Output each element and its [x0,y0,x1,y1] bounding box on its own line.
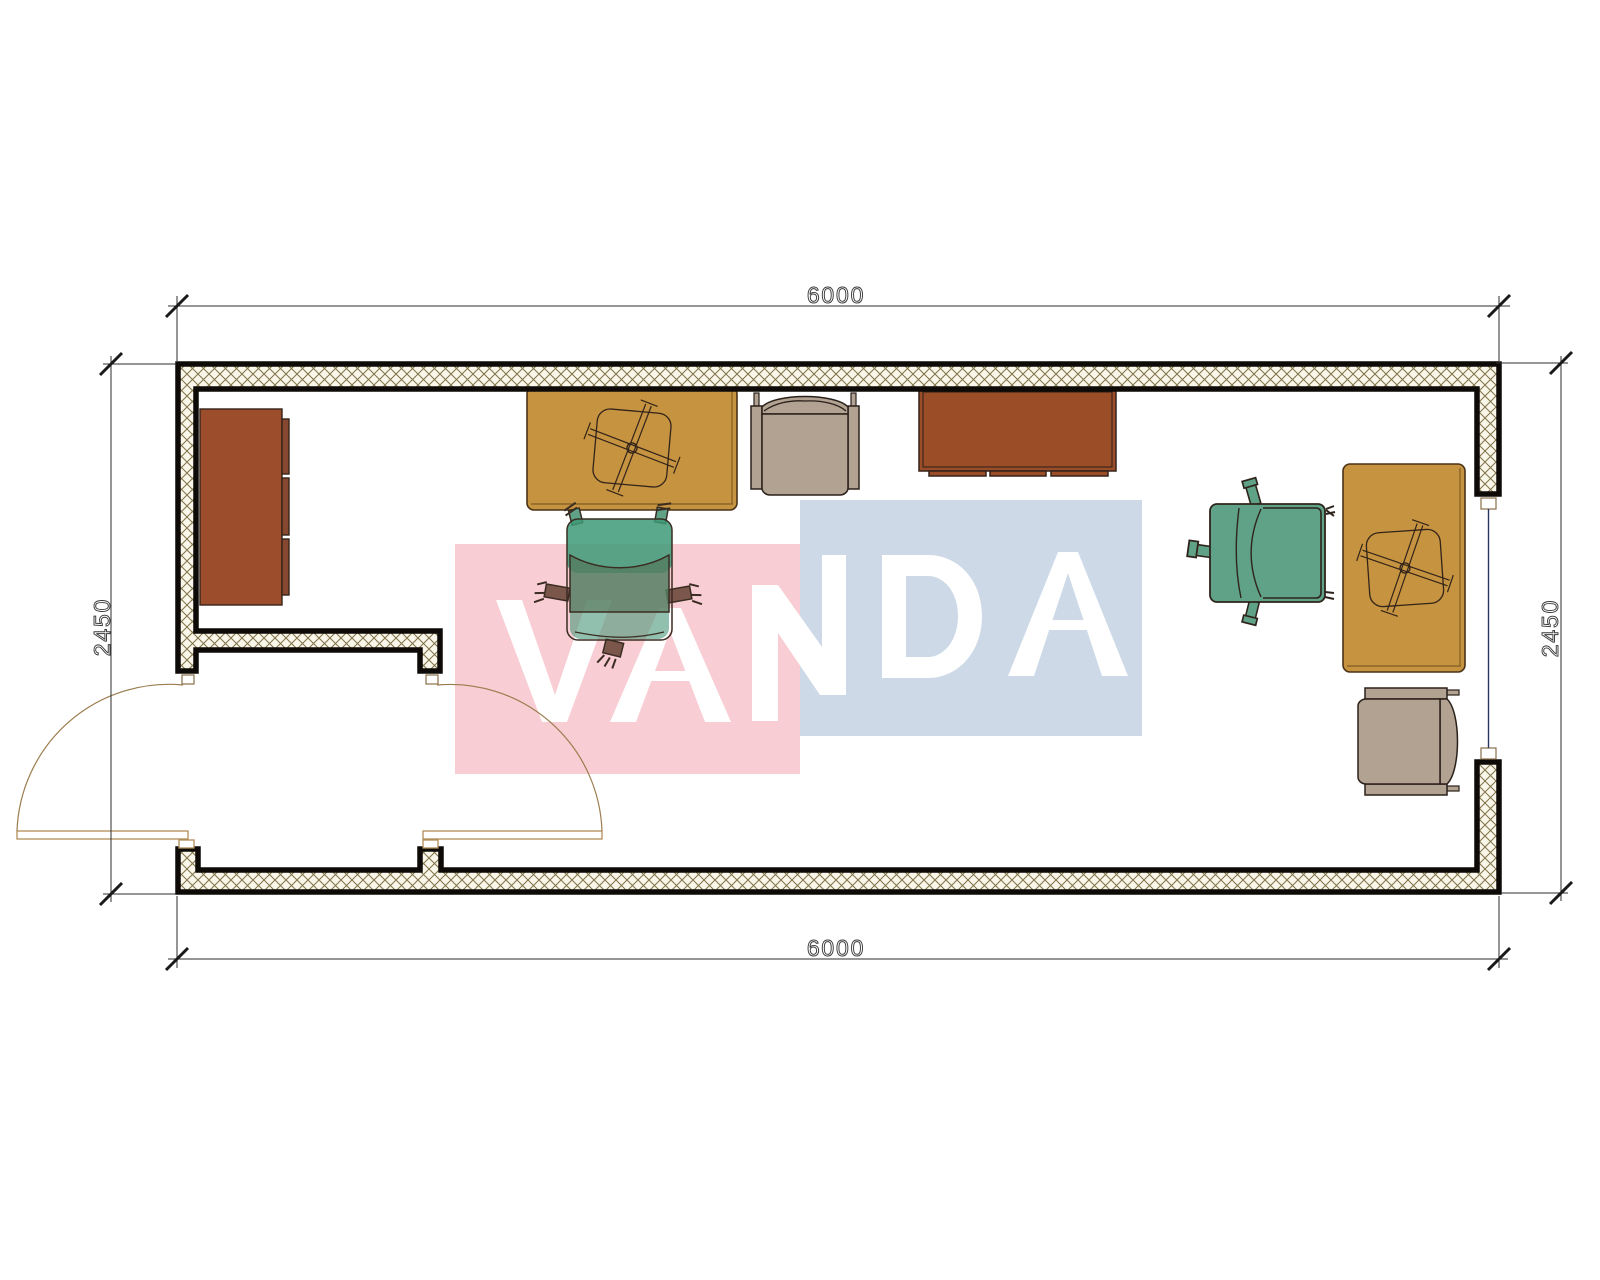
svg-text:6000: 6000 [807,935,865,961]
svg-text:2450: 2450 [89,598,115,656]
svg-text:6000: 6000 [807,282,865,308]
svg-text:2450: 2450 [1537,599,1563,657]
